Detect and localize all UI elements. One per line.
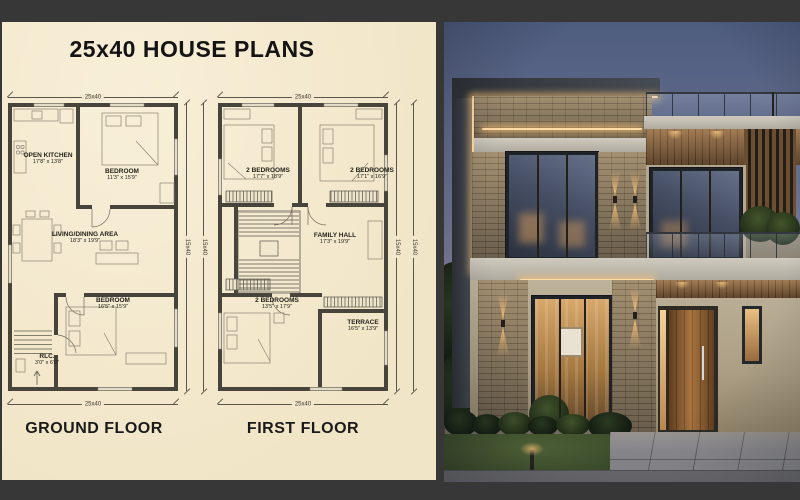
- first-floor-title: FIRST FLOOR: [247, 420, 359, 438]
- room-label-rlc: RLC.3'0" x 6'0": [35, 353, 59, 367]
- roof-side-slab: [452, 78, 472, 408]
- hedge: [588, 412, 632, 440]
- front-door: [668, 310, 714, 430]
- lawn: [444, 434, 636, 482]
- curtain-sheers: [535, 299, 609, 431]
- window-mullion: [709, 171, 711, 257]
- ceiling-downlight-glow: [748, 131, 770, 143]
- dim-line-ground-side-b: 15x40: [203, 103, 204, 391]
- tree-silhouette: [444, 262, 484, 382]
- ground-floor-title: GROUND FLOOR: [25, 420, 163, 438]
- sky: [444, 22, 800, 482]
- ceiling-downlight-glow: [672, 282, 692, 292]
- balcony-window: [650, 168, 742, 260]
- floor-divider-slab: [470, 258, 800, 281]
- room-label-bedroom-top: BEDROOM11'3" x 15'9": [105, 168, 139, 182]
- room-label-living-dining: LIVING/DINING AREA18'3" x 19'9": [52, 231, 118, 245]
- window-glass: [745, 309, 759, 361]
- tree-silhouette: [444, 352, 489, 442]
- hedge: [556, 414, 590, 436]
- driveway-pavers: [610, 432, 800, 482]
- wall-sconce: [633, 196, 637, 203]
- tree-silhouette: [452, 322, 488, 382]
- wall-sconce: [613, 196, 617, 203]
- fence-wall: [444, 270, 482, 332]
- foreground-walkway: [444, 470, 800, 482]
- window-glass: [535, 299, 609, 431]
- stone-band-upper: [474, 96, 652, 140]
- led-strip-mid: [482, 128, 642, 130]
- balcony-glass-railing: [646, 232, 800, 260]
- wall-sconce-upglow: [608, 172, 622, 196]
- hedge: [498, 412, 532, 436]
- porch-wood-ceiling: [656, 280, 800, 298]
- led-strip-slab: [520, 279, 654, 281]
- ceiling-downlight-glow: [504, 152, 530, 166]
- room-label-2bedrooms-bottom: 2 BEDROOMS13'5" x 17'9": [255, 297, 299, 311]
- hedge: [472, 414, 502, 436]
- railing-post: [772, 92, 774, 118]
- balcony-side-wall: [746, 233, 800, 258]
- ceiling-downlight-glow: [664, 131, 686, 143]
- ground-floor-window: [532, 296, 612, 434]
- balcony-plant: [766, 212, 800, 245]
- dim-line-ground-top: 25x40: [8, 97, 178, 98]
- door-sidelight: [660, 310, 666, 430]
- dim-line-first-side-a: 15x40: [396, 103, 397, 391]
- hedge: [444, 410, 478, 436]
- window-mullion: [537, 155, 539, 257]
- small-side-window: [742, 306, 762, 364]
- house-photo: [444, 22, 800, 482]
- first-floor-plan-drawing: [218, 103, 388, 391]
- dim-line-first-bottom: 25x40: [218, 404, 388, 405]
- stone-column-upper-right: [598, 152, 652, 260]
- led-strip-roof: [472, 96, 658, 98]
- balcony-wall: [646, 165, 746, 261]
- window-mullion: [559, 299, 561, 431]
- wood-soffit-balcony: [646, 129, 800, 165]
- stone-column-upper-left: [472, 152, 506, 260]
- front-door-frame: [658, 306, 718, 434]
- window-glass: [509, 155, 595, 257]
- window-glass: [653, 171, 739, 257]
- interior-warm-light: [519, 213, 543, 243]
- wall-sconce-downglow: [627, 203, 643, 231]
- dim-line-first-side-b: 15x40: [413, 103, 414, 391]
- wall-sconce-downglow: [495, 327, 511, 357]
- interior-warm-light: [661, 221, 687, 247]
- wall-sconce: [633, 312, 637, 319]
- room-label-terrace: TERRACE16'5" x 13'9": [347, 319, 378, 333]
- bollard-glow: [520, 442, 544, 456]
- roof-top-slab: [452, 78, 660, 98]
- room-label-bedroom-bottom: BEDROOM16'5" x 15'9": [96, 297, 130, 311]
- picture-frame: [559, 327, 583, 357]
- window-mullion: [680, 171, 682, 257]
- dim-line-ground-bottom: 25x40: [8, 404, 178, 405]
- plan-sheet: 25x40 HOUSE PLANS 25x40 25x40 25x40 25x4…: [2, 22, 436, 480]
- window-mullion: [566, 155, 568, 257]
- dim-line-ground-side-a: 15x40: [186, 103, 187, 391]
- ceiling-downlight-glow: [548, 152, 574, 166]
- wall-sconce-downglow: [627, 319, 643, 349]
- screenshot-root: 25x40 HOUSE PLANS 25x40 25x40 25x40 25x4…: [0, 0, 800, 500]
- door-handle: [702, 346, 704, 380]
- room-label-open-kitchen: OPEN KITCHEN17'8" x 13'8": [23, 152, 72, 166]
- interior-plant: [529, 395, 569, 433]
- room-label-2bedrooms-left: 2 BEDROOMS17'7" x 18'9": [246, 167, 290, 181]
- stone-pillar-left: [478, 280, 528, 434]
- ceiling-downlight-glow: [712, 282, 732, 292]
- ground-floor-wall: [470, 280, 800, 434]
- roof-terrace-railing: [646, 92, 800, 120]
- page-title: 25x40 HOUSE PLANS: [2, 36, 382, 63]
- window-mullion: [584, 299, 586, 431]
- porch-step: [650, 432, 726, 440]
- room-label-family-hall: FAMILY HALL17'3" x 19'9": [314, 232, 356, 246]
- wall-sconce-upglow: [628, 172, 642, 196]
- dim-line-first-top: 25x40: [218, 97, 388, 98]
- ceiling-downlight-glow: [706, 131, 728, 143]
- balcony-plant: [740, 206, 780, 242]
- bollard-light: [530, 450, 534, 474]
- wall-sconce-upglow: [628, 288, 642, 312]
- ground-floor-plan-drawing: [8, 103, 178, 391]
- wall-sconce-upglow: [496, 294, 510, 320]
- upper-floor-window: [506, 152, 598, 260]
- wood-louver-screen: [744, 129, 796, 233]
- led-strip-vertical: [472, 98, 474, 274]
- fascia-slab: [474, 138, 666, 153]
- planter-curb: [444, 422, 612, 434]
- wall-sconce: [501, 320, 505, 327]
- right-wing-roof-slab: [644, 116, 800, 130]
- interior-warm-light: [559, 221, 585, 247]
- wall-sconce-downglow: [607, 203, 623, 231]
- room-label-2bedrooms-right: 2 BEDROOMS17'1" x 16'9": [350, 167, 394, 181]
- stone-pillar-center: [612, 280, 656, 434]
- hedge: [528, 416, 558, 436]
